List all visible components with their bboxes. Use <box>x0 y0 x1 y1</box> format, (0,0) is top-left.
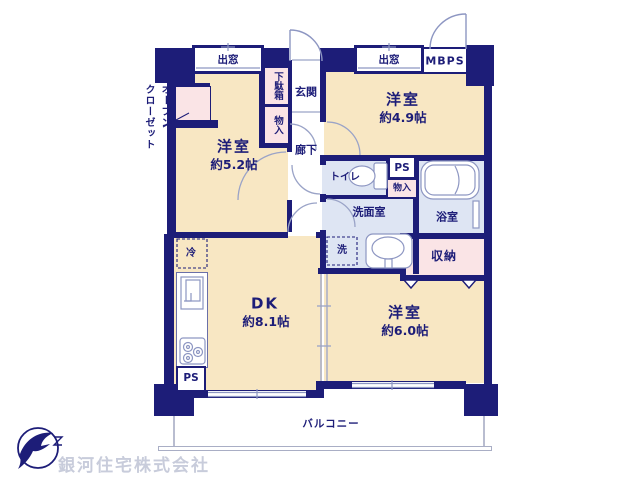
room-dk-size: 約8.1帖 <box>242 316 289 329</box>
corner-pillar-bottom-right <box>464 384 498 416</box>
kitchen-counter <box>176 272 208 368</box>
wall-segment <box>287 200 292 232</box>
room-dk-name: DK <box>251 297 279 312</box>
wall-segment <box>316 381 324 398</box>
open-closet-label-line1: オープン <box>157 84 172 150</box>
room-western-4-9-size: 約4.9帖 <box>379 112 426 125</box>
fridge-label: 冷 <box>186 249 196 259</box>
balcony-rail-right <box>483 416 485 447</box>
small-storage-label: 物入 <box>393 185 411 194</box>
company-name-watermark: 銀河住宅株式会社 <box>58 451 210 476</box>
wall-segment <box>400 275 492 281</box>
toilet-label: トイレ <box>330 173 360 183</box>
open-closet-label: クローゼット オープン <box>141 84 172 150</box>
wall-segment <box>155 48 195 83</box>
bathroom-label: 浴室 <box>436 212 458 223</box>
wall-segment <box>164 234 174 384</box>
wall-segment <box>316 232 326 238</box>
wall-segment <box>265 104 288 107</box>
balcony-label: バルコニー <box>302 419 359 430</box>
wall-segment <box>400 233 492 239</box>
wall-segment <box>466 45 494 86</box>
room-western-6-0-size: 約6.0帖 <box>381 325 428 338</box>
company-bird-logo-icon <box>18 428 62 469</box>
balcony-rail-left <box>173 416 175 447</box>
wall-segment <box>318 268 406 274</box>
entrance-label: 玄関 <box>295 87 317 98</box>
bay-window-right-label: 出窓 <box>379 55 400 66</box>
room-western-4-9-name: 洋室 <box>386 93 420 108</box>
wall-segment <box>320 60 326 122</box>
floorplan-canvas: 出窓 出窓 MBPS クローゼット オープン 下駄箱 物入 玄関 廊下 洋室 約… <box>0 0 640 480</box>
open-closet-floor <box>176 86 211 122</box>
pipe-space-bottom-label: PS <box>183 373 198 384</box>
wall-segment <box>170 232 288 238</box>
washroom-label: 洗面室 <box>353 207 386 218</box>
shoe-box-label: 下駄箱 <box>272 72 282 101</box>
dk-door-icon <box>288 203 317 232</box>
hallway-label: 廊下 <box>295 145 317 156</box>
mbps-door-icon <box>430 14 466 49</box>
mbps-label: MBPS <box>425 56 464 67</box>
room-western-6-0-name: 洋室 <box>388 306 422 321</box>
washer-label: 洗 <box>337 246 347 256</box>
bathroom-floor <box>417 156 486 237</box>
window-dk <box>208 391 306 397</box>
entrance-door-icon <box>290 30 322 61</box>
wall-segment <box>176 83 210 87</box>
wall-segment <box>484 82 492 384</box>
open-closet-label-line2: クローゼット <box>141 84 156 150</box>
bay-window-left-label: 出窓 <box>218 55 239 66</box>
toilet-door-icon <box>292 165 320 194</box>
hall-storage-label: 物入 <box>272 116 282 135</box>
storage-closet-label: 収納 <box>431 250 457 262</box>
wall-segment <box>388 177 416 180</box>
room-western-5-2-name: 洋室 <box>217 140 251 155</box>
window-western-6-0 <box>352 382 434 388</box>
pipe-space-top-label: PS <box>394 163 409 174</box>
room-western-5-2-size: 約5.2帖 <box>210 159 257 172</box>
wall-segment <box>176 120 218 128</box>
